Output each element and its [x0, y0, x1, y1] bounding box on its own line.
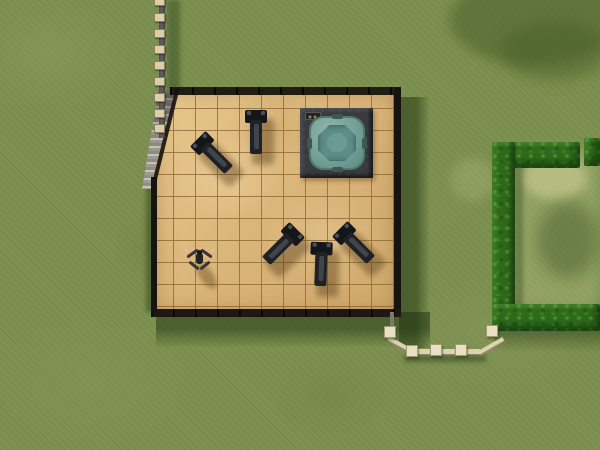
bench-knob	[327, 243, 331, 247]
exercise-bench[interactable]	[309, 242, 333, 289]
bench-knob	[192, 143, 198, 149]
bench-knob	[297, 234, 303, 240]
bench-pad	[318, 256, 324, 281]
sim-hand	[211, 249, 214, 252]
bench-seat	[314, 252, 327, 286]
bench-pad	[268, 238, 289, 259]
bench-knob	[202, 133, 208, 139]
bench-seat	[201, 142, 234, 175]
lot-scene	[0, 0, 600, 450]
sim-hand	[185, 249, 188, 252]
bench-pad	[348, 237, 369, 258]
bench-seat	[343, 232, 376, 265]
bench-knob	[247, 111, 251, 115]
bench-knob	[344, 223, 350, 229]
bench-knob	[334, 233, 340, 239]
sim-head	[197, 250, 202, 255]
sim-character[interactable]	[187, 245, 213, 275]
bench-pad	[206, 147, 227, 168]
bench-knob	[261, 111, 265, 115]
exercise-bench[interactable]	[245, 110, 267, 156]
bench-seat	[250, 120, 262, 154]
bench-knob	[313, 243, 317, 247]
bench-knob	[287, 224, 293, 230]
objects-layer	[0, 0, 600, 450]
bench-pad	[254, 124, 259, 149]
